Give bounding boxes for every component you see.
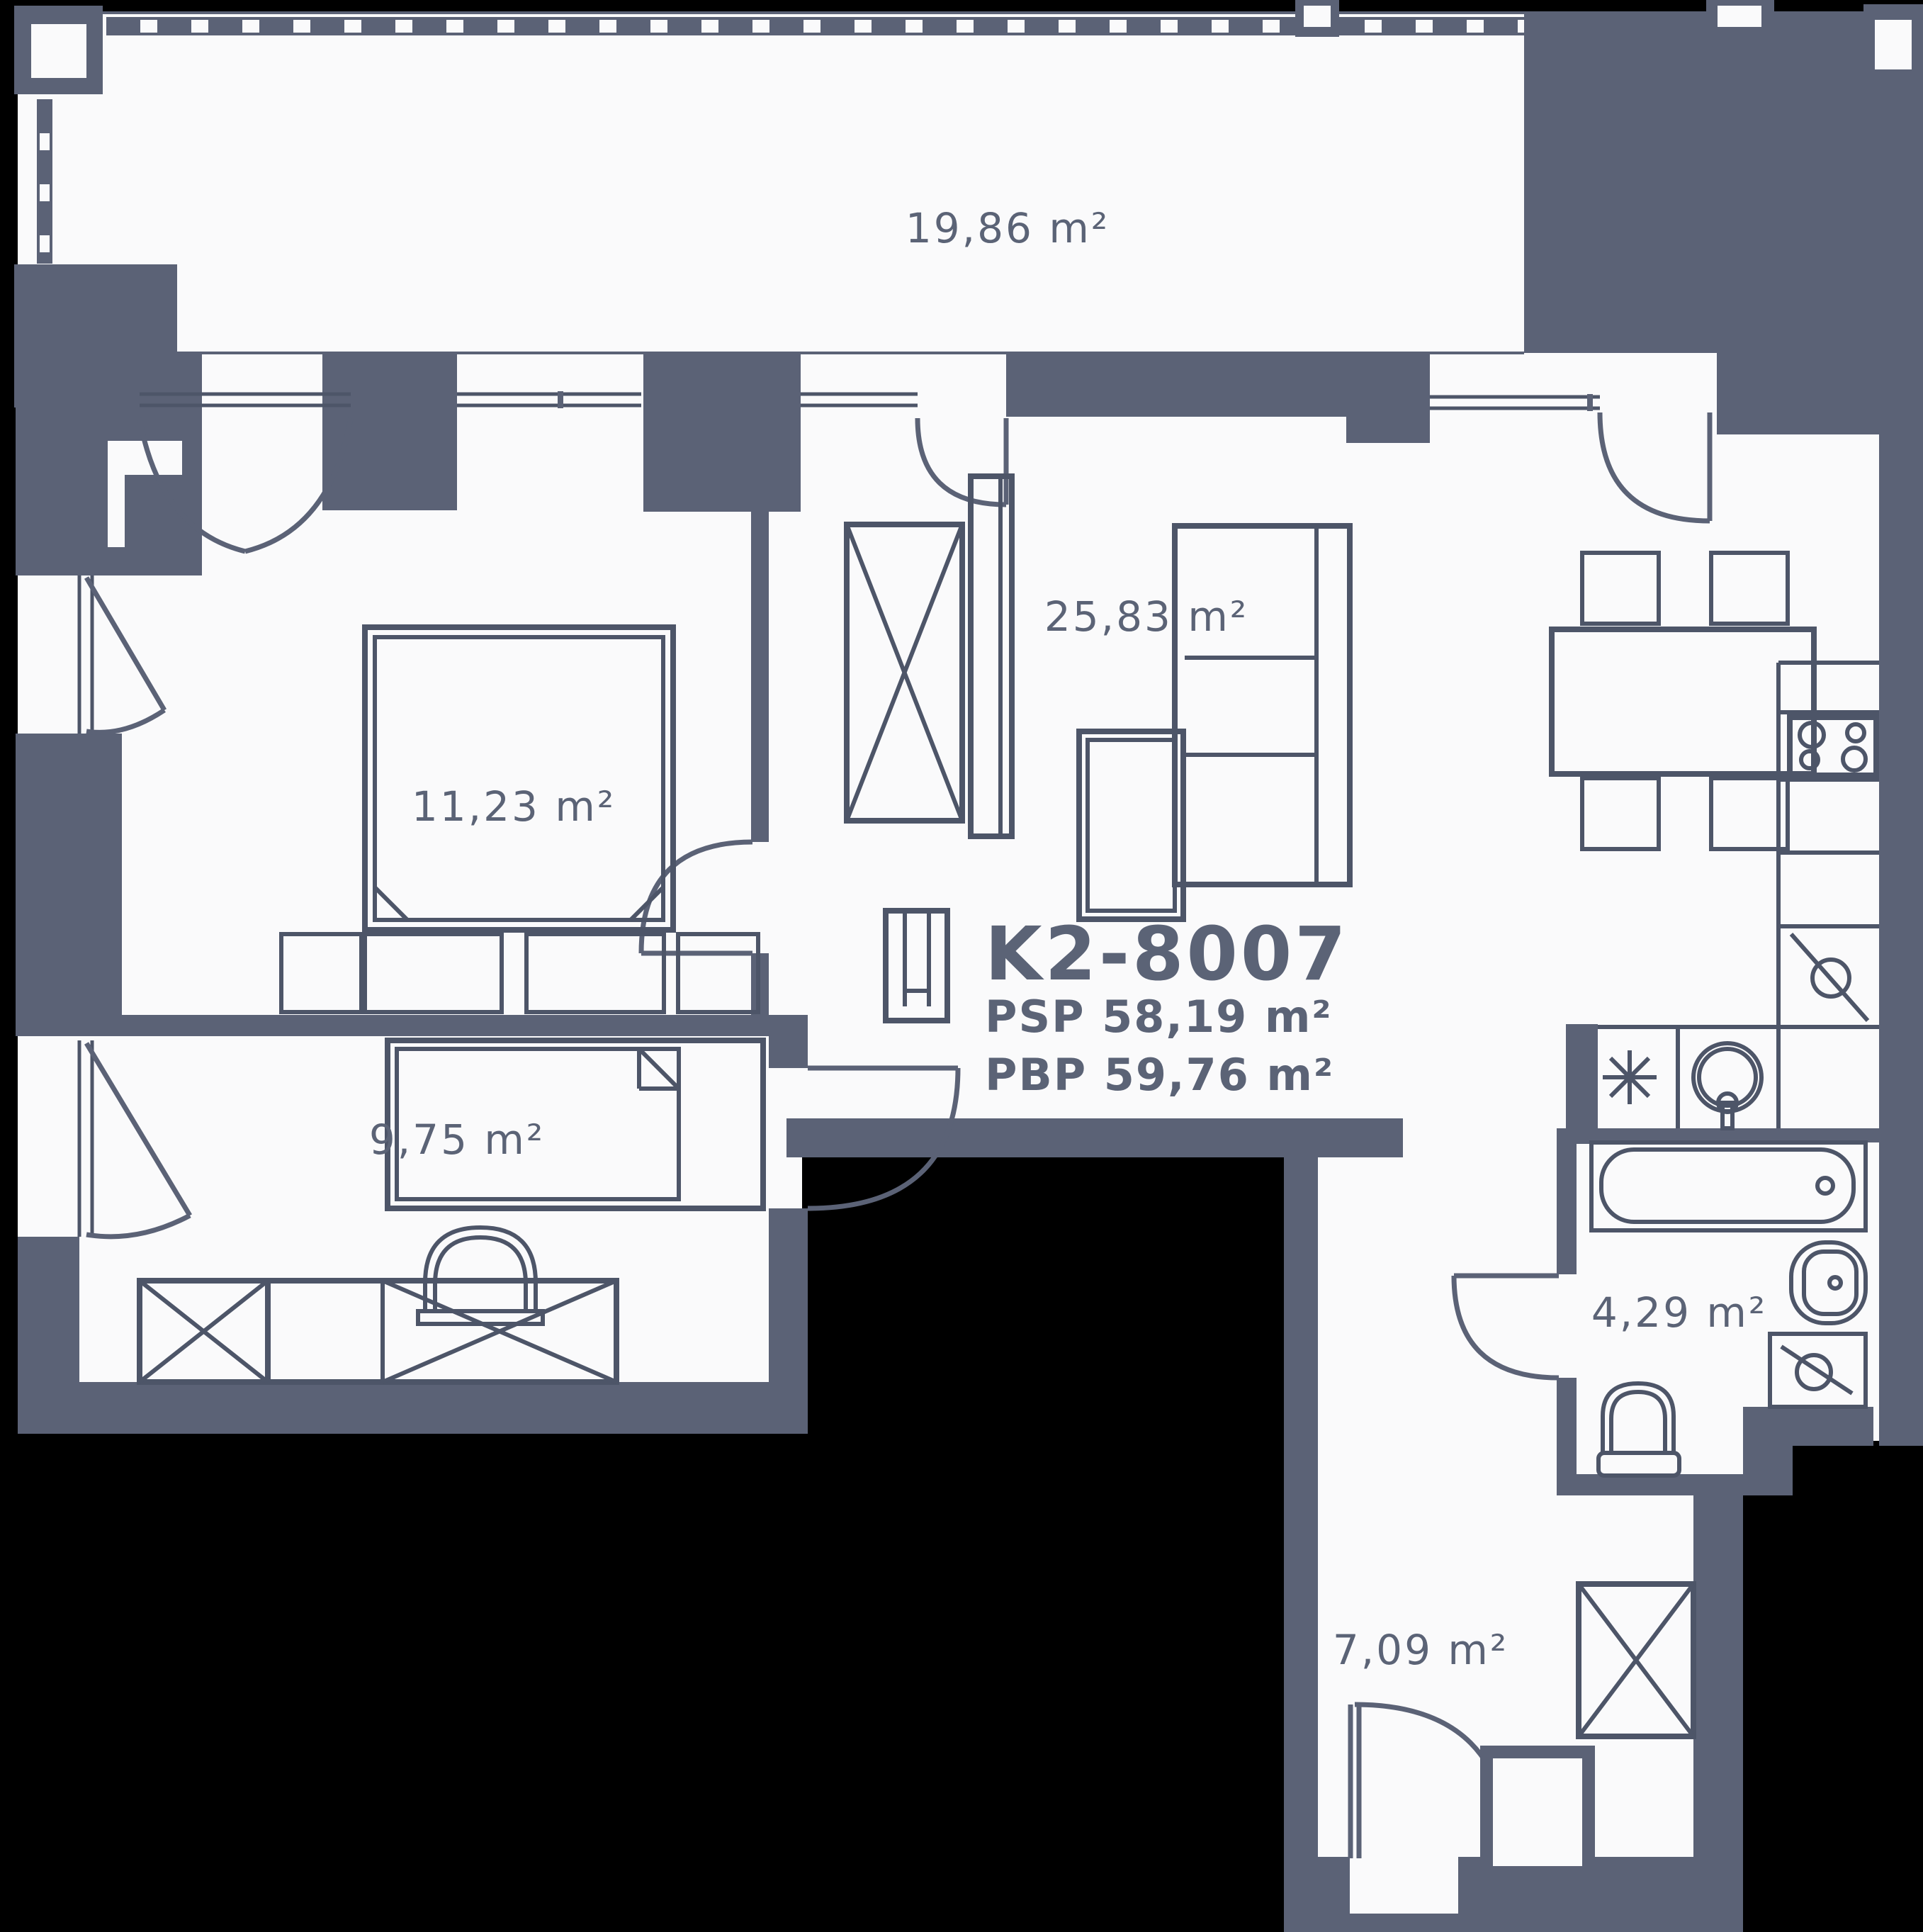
floor-plan-svg: 19,86 m² 11,23 m² 25,83 m² 9,75 m² 4,29 …	[0, 0, 1923, 1932]
bedroom1-area-label: 11,23 m²	[412, 782, 616, 831]
cutout-bottom-right	[1793, 1441, 1923, 1932]
cutout-bottom-left	[18, 1434, 802, 1932]
floor-plan-page: 19,86 m² 11,23 m² 25,83 m² 9,75 m² 4,29 …	[0, 0, 1923, 1932]
hallway-area-label: 7,09 m²	[1333, 1626, 1508, 1674]
psp-area-text: PSP 58,19 m²	[985, 991, 1333, 1043]
neighbour-wall-mass	[1524, 13, 1923, 353]
pbp-area-text: PBP 59,76 m²	[985, 1049, 1334, 1101]
bedroom2-area-label: 9,75 m²	[369, 1116, 545, 1164]
hall-niche	[1487, 1752, 1589, 1872]
bathroom-area-label: 4,29 m²	[1591, 1288, 1767, 1337]
cutout-bottom-right-2	[1743, 1495, 1793, 1932]
unit-id-title: K2-8007	[985, 911, 1349, 997]
bedrooms-partition	[18, 1015, 769, 1036]
terrace-floor	[18, 13, 1524, 353]
living-area-label: 25,83 m²	[1044, 592, 1248, 641]
dishwasher-symbol	[1603, 1050, 1657, 1104]
terrace-area-label: 19,86 m²	[906, 204, 1110, 252]
cutout-bottom-center	[802, 1157, 1284, 1932]
